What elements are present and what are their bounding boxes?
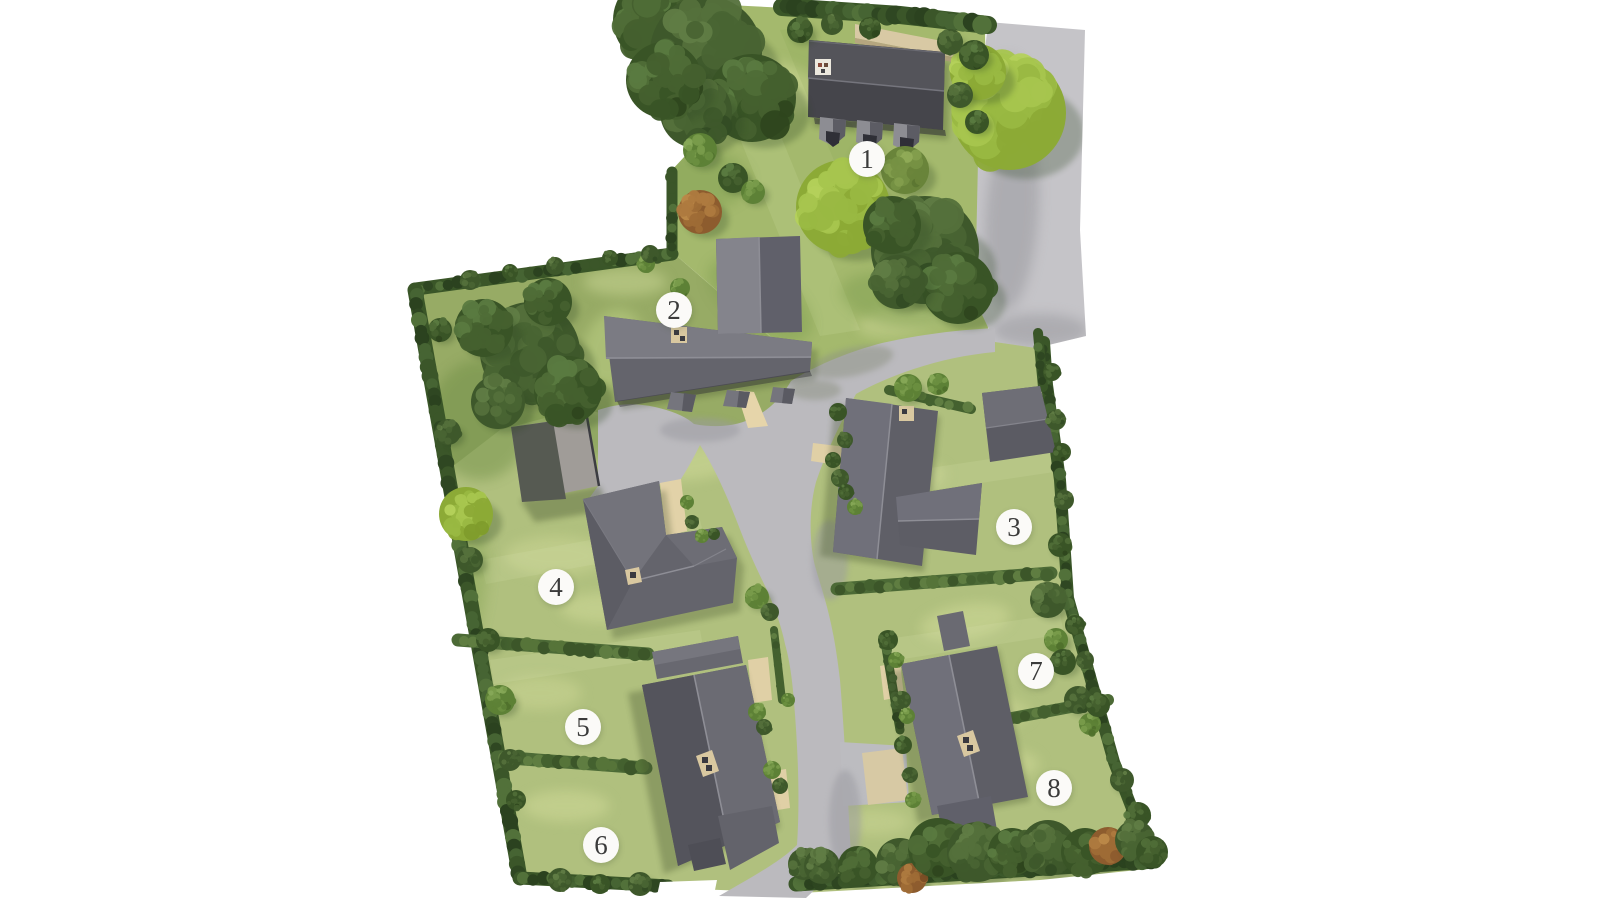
svg-text:5: 5 (576, 712, 590, 742)
svg-text:4: 4 (549, 572, 563, 602)
svg-text:6: 6 (594, 830, 608, 860)
svg-text:1: 1 (860, 144, 874, 174)
svg-text:7: 7 (1029, 656, 1043, 686)
svg-text:2: 2 (667, 295, 681, 325)
svg-text:8: 8 (1047, 773, 1061, 803)
svg-text:3: 3 (1007, 512, 1021, 542)
